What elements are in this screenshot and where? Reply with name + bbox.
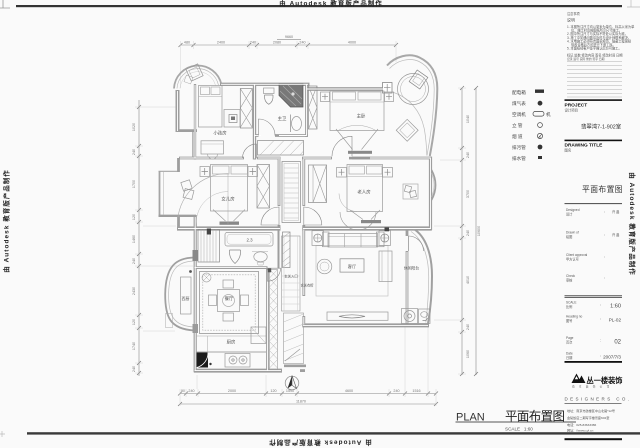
svg-text:主卧: 主卧 <box>357 113 366 120</box>
svg-text:金陵饭店二期写字楼景座602室: 金陵饭店二期写字楼景座602室 <box>567 415 609 420</box>
svg-text:平面布置图: 平面布置图 <box>582 184 623 194</box>
svg-text:地址：南京市鼓楼区中山北路*12号: 地址：南京市鼓楼区中山北路*12号 <box>567 408 615 413</box>
svg-text:记录 运号 实际 修约 签字 日期: 记录 运号 实际 修约 签字 日期 <box>567 57 605 61</box>
svg-text:：: ： <box>604 210 607 214</box>
svg-text:Client approval: Client approval <box>566 253 588 257</box>
svg-text:Page: Page <box>566 336 574 340</box>
svg-text:绘图: 绘图 <box>566 234 572 239</box>
svg-text:图名: 图名 <box>565 148 572 153</box>
svg-text:240: 240 <box>250 41 256 45</box>
svg-text:翡翠湾7-1-902室: 翡翠湾7-1-902室 <box>581 123 622 131</box>
svg-text:02: 02 <box>614 340 621 346</box>
svg-text:4010: 4010 <box>466 276 470 284</box>
svg-text:由 Autodesk 教育版产品制作: 由 Autodesk 教育版产品制作 <box>2 169 11 273</box>
svg-text:120: 120 <box>132 319 136 325</box>
svg-text:2080: 2080 <box>273 41 281 45</box>
svg-text:排水管: 排水管 <box>512 155 526 162</box>
svg-text:11870: 11870 <box>296 399 306 403</box>
svg-text:比例: 比例 <box>566 304 572 309</box>
svg-text:2.3: 2.3 <box>246 238 253 243</box>
svg-text:：: ： <box>600 339 603 343</box>
svg-text:1020: 1020 <box>132 123 136 131</box>
svg-text:排污管: 排污管 <box>512 144 526 151</box>
svg-text:Check: Check <box>566 274 575 278</box>
svg-text:1060: 1060 <box>466 350 470 358</box>
svg-text:机: 机 <box>546 111 551 118</box>
svg-text:空调机: 空调机 <box>512 111 526 118</box>
svg-text:SCALE: SCALE <box>566 301 576 305</box>
svg-text:120: 120 <box>132 214 136 220</box>
svg-text:2000: 2000 <box>228 389 236 393</box>
svg-text:1740: 1740 <box>132 342 136 350</box>
svg-text:丛一楼装饰: 丛一楼装饰 <box>587 376 623 385</box>
svg-text:240: 240 <box>132 366 136 372</box>
svg-text:Drawn of: Drawn of <box>566 231 579 235</box>
svg-text:90: 90 <box>181 389 185 393</box>
svg-text:Date: Date <box>566 352 573 356</box>
svg-text:餐厅: 餐厅 <box>225 295 234 302</box>
svg-text:立 管: 立 管 <box>512 122 523 129</box>
svg-text:设计: 设计 <box>566 212 573 217</box>
svg-text:PL-02: PL-02 <box>609 318 622 323</box>
svg-text:2430: 2430 <box>132 287 136 295</box>
svg-text:240: 240 <box>393 389 399 393</box>
svg-text:注意事项: 注意事项 <box>567 11 581 16</box>
svg-text:许 晶: 许 晶 <box>612 232 619 237</box>
svg-text:240: 240 <box>188 389 194 393</box>
svg-text:5. 本图纸经客户签字确认后方可施工。: 5. 本图纸经客户签字确认后方可施工。 <box>567 46 622 51</box>
svg-text:：: ： <box>604 233 607 237</box>
svg-text:240: 240 <box>466 230 470 236</box>
svg-text:：: ： <box>604 276 607 280</box>
svg-text:说明: 说明 <box>567 17 575 23</box>
svg-text:1:60: 1:60 <box>610 304 621 310</box>
svg-text:由 Autodesk 教育版产品制作: 由 Autodesk 教育版产品制作 <box>628 172 637 276</box>
svg-text:1516: 1516 <box>412 389 420 393</box>
svg-text:120: 120 <box>270 389 276 393</box>
svg-text:1700: 1700 <box>132 180 136 188</box>
svg-text:4600: 4600 <box>345 389 353 393</box>
svg-text:玄关入口: 玄关入口 <box>284 274 298 279</box>
svg-text:女儿房: 女儿房 <box>221 196 235 203</box>
svg-text:老人房: 老人房 <box>357 189 371 196</box>
svg-text:Heading no: Heading no <box>566 315 583 319</box>
svg-text:电话：025-83633386: 电话：025-83633386 <box>567 422 597 427</box>
svg-text:4000: 4000 <box>348 41 356 45</box>
svg-text:网址：//www.cyl.cn: 网址：//www.cyl.cn <box>567 428 594 433</box>
svg-text:由 Autodesk 教育版产品制作: 由 Autodesk 教育版产品制作 <box>279 0 383 8</box>
svg-text:240: 240 <box>466 324 470 330</box>
svg-text:厨房: 厨房 <box>227 339 236 346</box>
svg-text:小孩房: 小孩房 <box>213 130 227 137</box>
svg-text:Designed: Designed <box>566 208 580 212</box>
svg-text:DESIGNERS CO.: DESIGNERS CO. <box>565 397 632 402</box>
svg-text:：: ： <box>604 255 607 259</box>
svg-text:西厨: 西厨 <box>182 295 190 301</box>
svg-text:2007/7/3: 2007/7/3 <box>603 355 621 360</box>
svg-text:240: 240 <box>132 149 136 155</box>
svg-text:480: 480 <box>184 41 190 45</box>
svg-text:客厅: 客厅 <box>348 263 356 270</box>
svg-text:240: 240 <box>466 152 470 158</box>
svg-text:甲方认可: 甲方认可 <box>566 257 580 262</box>
svg-text:配电箱: 配电箱 <box>512 89 526 96</box>
svg-text:设计项目: 设计项目 <box>565 107 579 112</box>
svg-text:10600: 10600 <box>477 226 481 236</box>
svg-text:由 Autodesk 教育版产品制作: 由 Autodesk 教育版产品制作 <box>268 439 372 448</box>
svg-text:SCALE 1:60: SCALE 1:60 <box>505 427 533 432</box>
svg-text:9660: 9660 <box>285 35 293 39</box>
svg-text:主卫: 主卫 <box>278 115 287 121</box>
svg-text:图号: 图号 <box>566 318 572 323</box>
svg-text:许 晶: 许 晶 <box>612 209 619 214</box>
svg-text:休闲阳台: 休闲阳台 <box>404 266 419 271</box>
svg-text:煤气表: 煤气表 <box>512 100 526 107</box>
svg-text:1040: 1040 <box>466 115 470 123</box>
svg-text:1460: 1460 <box>132 235 136 243</box>
svg-text:页次: 页次 <box>566 340 573 345</box>
svg-text:：: ： <box>600 317 603 321</box>
svg-text:玄关衣帽: 玄关衣帽 <box>301 283 314 288</box>
svg-text:：: ： <box>600 303 603 307</box>
svg-text:3700: 3700 <box>466 190 470 198</box>
svg-text:南 京 装 饰 公 司: 南 京 装 饰 公 司 <box>572 384 611 388</box>
svg-text:2400: 2400 <box>217 41 225 45</box>
svg-text:平面布置图: 平面布置图 <box>505 410 565 424</box>
svg-text:审核: 审核 <box>566 278 573 283</box>
svg-text:240: 240 <box>299 41 305 45</box>
svg-text:240: 240 <box>132 258 136 264</box>
svg-text:烟 道: 烟 道 <box>512 133 523 140</box>
svg-text:日期: 日期 <box>566 355 572 360</box>
